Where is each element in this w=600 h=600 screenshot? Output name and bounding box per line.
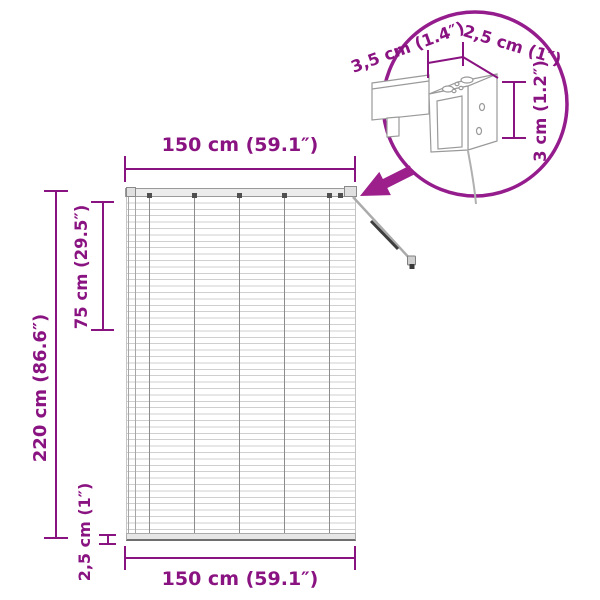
top-width-dim-line <box>125 168 355 170</box>
bottom-width-label: 150 cm (59.1″) <box>125 570 355 589</box>
wand-handle <box>408 256 416 265</box>
bottom-width-dim-line <box>125 557 355 559</box>
total-height-dim-line <box>55 191 57 539</box>
bottom-rail-label: 2,5 cm (1″) <box>77 483 93 582</box>
dim-tick <box>91 201 114 203</box>
total-height-label: 220 cm (86.6″) <box>32 314 50 462</box>
screw-hole <box>452 89 456 92</box>
tilt-wand <box>353 197 416 269</box>
screw-hole <box>455 82 459 85</box>
product-dimension-diagram: 150 cm (59.1″) 150 cm (59.1″) 220 cm (86… <box>0 0 600 600</box>
bracket-right-face <box>468 74 497 150</box>
dim-tick <box>91 329 114 331</box>
bracket-height-label: 3 cm (1.2″) <box>533 60 550 162</box>
top-width-label: 150 cm (59.1″) <box>125 136 355 155</box>
dim-tick <box>354 546 356 570</box>
upper-height-label: 75 cm (29.5″) <box>74 205 91 330</box>
rail-height-dim-line <box>107 536 109 543</box>
dim-tick <box>44 537 68 539</box>
dim-tick <box>44 190 68 192</box>
dim-tick <box>124 546 126 570</box>
screw-hole <box>459 86 463 89</box>
dim-tick <box>99 543 116 545</box>
screw-hole <box>480 104 485 111</box>
detail-pointer-arrow-icon <box>360 166 414 197</box>
dim-tick <box>124 156 126 182</box>
wand-tip <box>410 264 415 269</box>
screw-hole <box>477 128 482 135</box>
screw-hole <box>461 77 473 83</box>
upper-height-dim-line <box>102 202 104 331</box>
dim-tick <box>354 156 356 182</box>
